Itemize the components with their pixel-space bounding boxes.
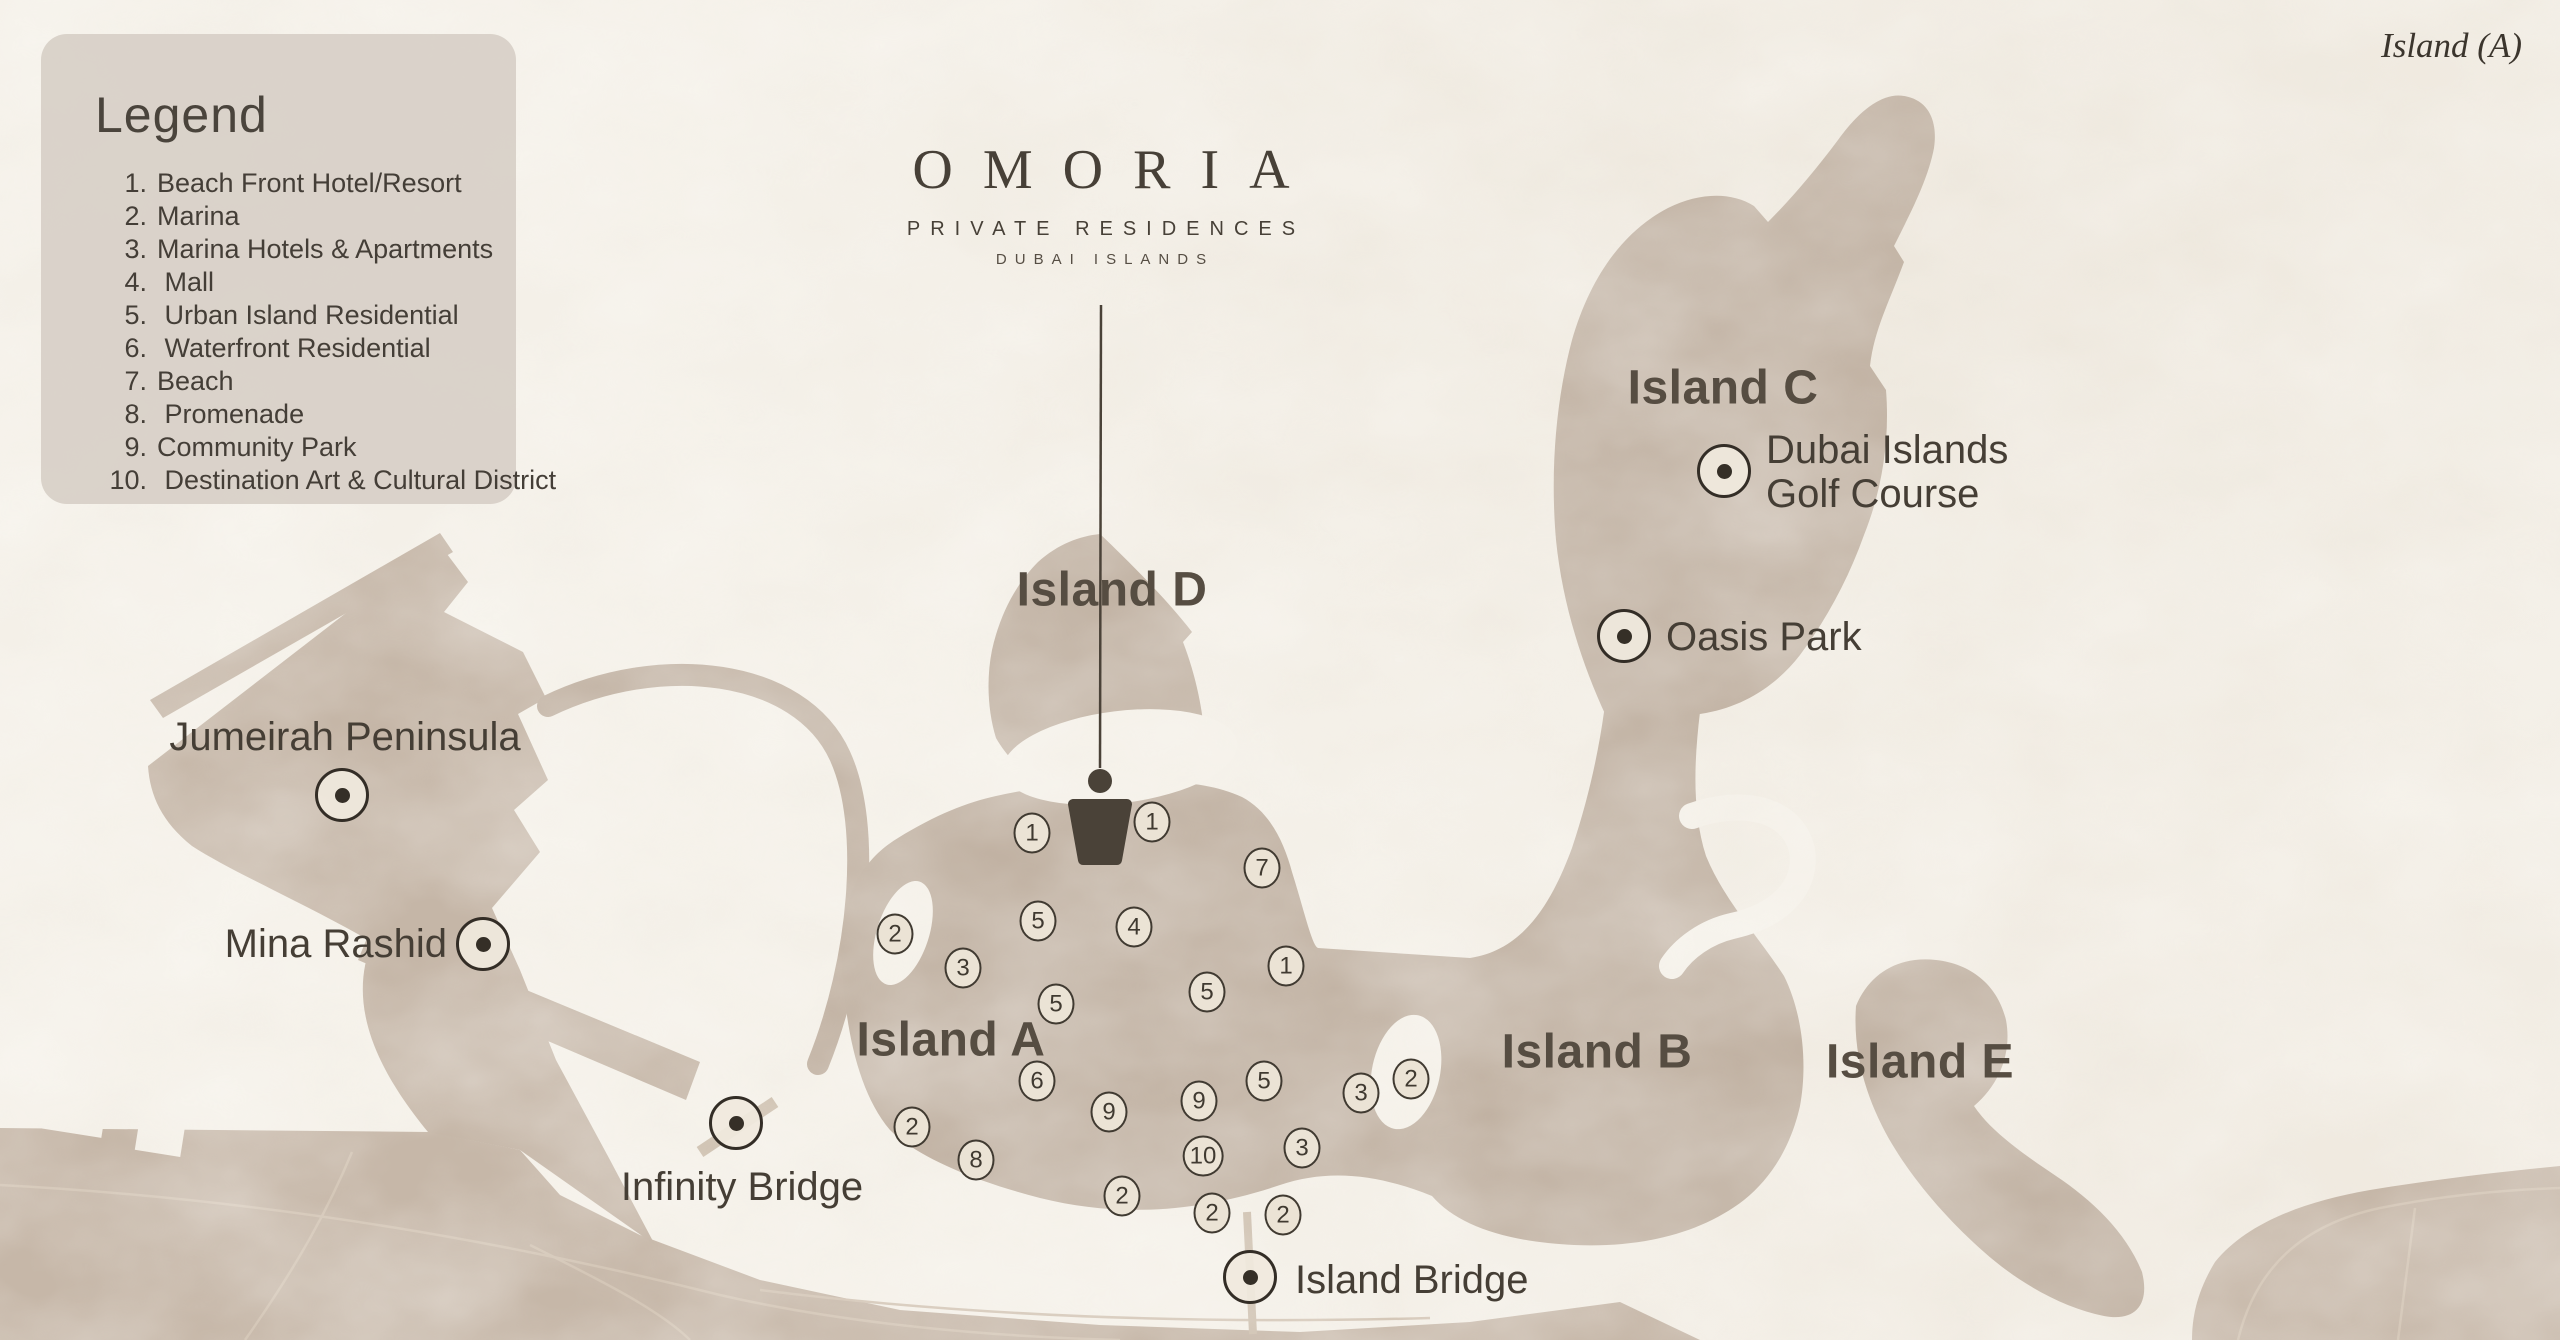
legend-item-label: Marina — [157, 203, 240, 230]
map-badge-6: 6 — [1019, 1061, 1056, 1102]
map-badge-4: 4 — [1116, 907, 1153, 948]
poi-dot-icon — [476, 937, 491, 952]
legend-item-label: Beach — [157, 368, 234, 395]
infinity-bridge-label: Infinity Bridge — [621, 1165, 863, 1209]
legend-item-label: Urban Island Residential — [157, 302, 459, 329]
logo-name: OMORIA — [912, 138, 1319, 202]
infinity-bridge-marker — [709, 1096, 763, 1150]
map-badge-1: 1 — [1134, 802, 1171, 843]
legend-item-number: 8. — [95, 401, 147, 428]
map-badge-3: 3 — [945, 948, 982, 989]
map-badge-3: 3 — [1343, 1073, 1380, 1114]
island-d-label: Island D — [1017, 563, 1208, 618]
legend-item-7: 7.Beach — [95, 368, 476, 395]
map-badge-2: 2 — [894, 1107, 931, 1148]
legend-item-number: 10. — [95, 467, 147, 494]
mina-rashid-marker — [456, 917, 510, 971]
omoria-logo: OMORIA PRIVATE RESIDENCES DUBAI ISLANDS — [907, 138, 1295, 268]
legend-item-label: Destination Art & Cultural District — [157, 467, 556, 494]
legend-item-number: 1. — [95, 170, 147, 197]
legend-item-label: Promenade — [157, 401, 304, 428]
jumeirah-peninsula-label: Jumeirah Peninsula — [169, 715, 520, 759]
map-badge-5: 5 — [1189, 972, 1226, 1013]
legend-item-number: 2. — [95, 203, 147, 230]
map-badge-10: 10 — [1183, 1136, 1224, 1177]
map-badge-5: 5 — [1020, 901, 1057, 942]
legend-item-8: 8. Promenade — [95, 401, 476, 428]
legend-item-number: 5. — [95, 302, 147, 329]
map-badge-2: 2 — [1265, 1195, 1302, 1236]
map-badge-7: 7 — [1244, 848, 1281, 889]
legend-item-label: Marina Hotels & Apartments — [157, 236, 493, 263]
legend-item-label: Beach Front Hotel/Resort — [157, 170, 462, 197]
dubai-islands-map: Legend 1.Beach Front Hotel/Resort2.Marin… — [0, 0, 2560, 1340]
legend-item-number: 7. — [95, 368, 147, 395]
island-bridge-marker — [1223, 1250, 1277, 1304]
oasis-park-marker — [1597, 609, 1651, 663]
map-badge-5: 5 — [1246, 1061, 1283, 1102]
legend-item-number: 6. — [95, 335, 147, 362]
map-badge-5: 5 — [1038, 984, 1075, 1025]
legend-item-6: 6. Waterfront Residential — [95, 335, 476, 362]
map-badge-1: 1 — [1014, 813, 1051, 854]
poi-dot-icon — [335, 788, 350, 803]
legend-item-4: 4. Mall — [95, 269, 476, 296]
legend-item-10: 10. Destination Art & Cultural District — [95, 467, 476, 494]
poi-dot-icon — [1243, 1270, 1258, 1285]
dubai-islands-golf-course-marker — [1697, 444, 1751, 498]
dubai-islands-golf-course-label: Dubai Islands Golf Course — [1766, 428, 2008, 516]
map-badge-8: 8 — [958, 1140, 995, 1181]
island-a-label: Island A — [857, 1013, 1046, 1068]
island-b-label: Island B — [1502, 1025, 1693, 1080]
legend-item-3: 3.Marina Hotels & Apartments — [95, 236, 476, 263]
map-badge-1: 1 — [1268, 946, 1305, 987]
map-badge-2: 2 — [877, 914, 914, 955]
corner-island-note: Island (A) — [2381, 26, 2522, 66]
legend-item-number: 4. — [95, 269, 147, 296]
logo-location: DUBAI ISLANDS — [996, 251, 1214, 268]
legend-item-1: 1.Beach Front Hotel/Resort — [95, 170, 476, 197]
legend-item-label: Community Park — [157, 434, 357, 461]
legend-panel: Legend 1.Beach Front Hotel/Resort2.Marin… — [41, 34, 516, 504]
map-badge-9: 9 — [1091, 1092, 1128, 1133]
map-badge-2: 2 — [1194, 1193, 1231, 1234]
legend-item-number: 9. — [95, 434, 147, 461]
legend-item-2: 2.Marina — [95, 203, 476, 230]
poi-dot-icon — [1717, 464, 1732, 479]
legend-item-number: 3. — [95, 236, 147, 263]
poi-dot-icon — [1617, 629, 1632, 644]
legend-item-label: Mall — [157, 269, 214, 296]
map-badge-3: 3 — [1284, 1128, 1321, 1169]
legend-item-label: Waterfront Residential — [157, 335, 431, 362]
island-e-label: Island E — [1826, 1035, 2014, 1090]
legend-list: 1.Beach Front Hotel/Resort2.Marina3.Mari… — [95, 170, 476, 494]
poi-dot-icon — [729, 1116, 744, 1131]
map-badge-2: 2 — [1104, 1176, 1141, 1217]
legend-title: Legend — [95, 86, 476, 144]
legend-item-9: 9.Community Park — [95, 434, 476, 461]
island-c-label: Island C — [1628, 361, 1819, 416]
legend-item-5: 5. Urban Island Residential — [95, 302, 476, 329]
jumeirah-peninsula-marker — [315, 768, 369, 822]
map-badge-9: 9 — [1181, 1081, 1218, 1122]
map-badge-2: 2 — [1393, 1059, 1430, 1100]
oasis-park-label: Oasis Park — [1666, 615, 1862, 659]
mina-rashid-label: Mina Rashid — [225, 922, 447, 966]
island-bridge-label: Island Bridge — [1295, 1258, 1528, 1302]
logo-subtitle: PRIVATE RESIDENCES — [907, 218, 1305, 241]
